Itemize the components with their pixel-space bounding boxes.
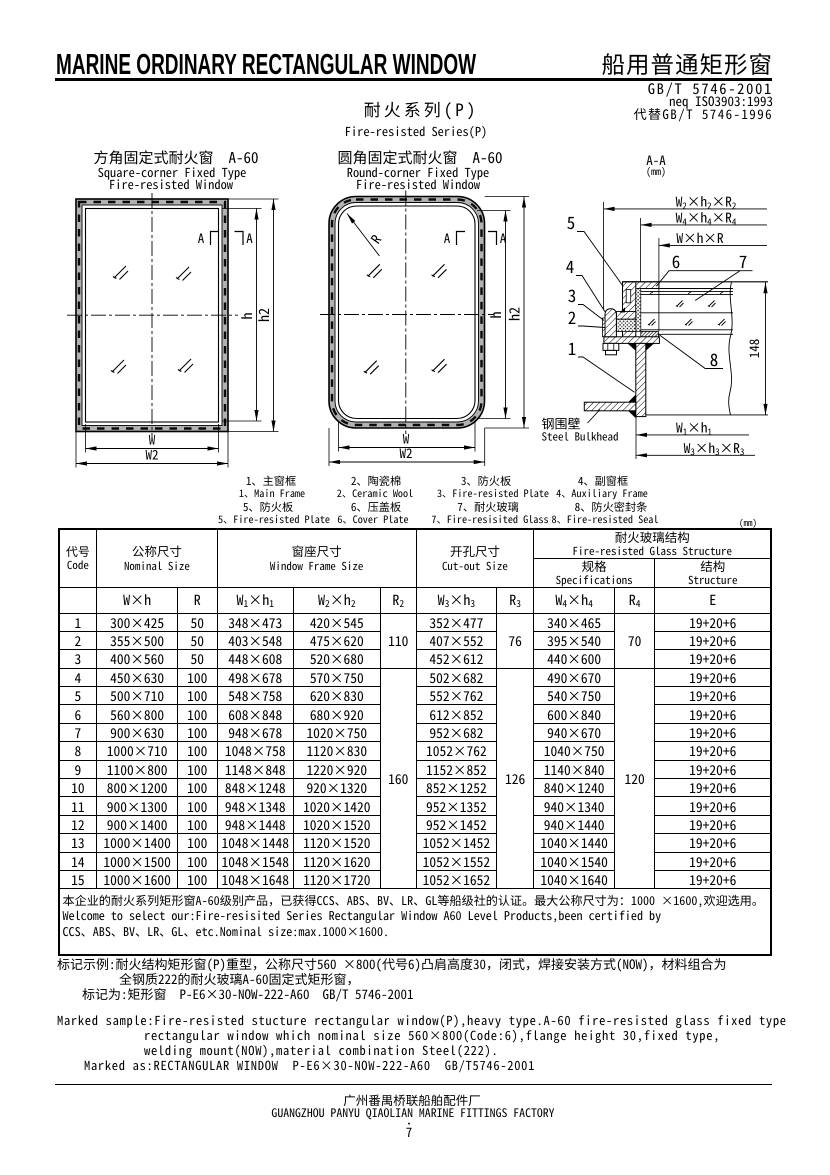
- svg-text:A: A: [444, 228, 451, 247]
- svg-text:148: 148: [744, 339, 763, 359]
- svg-text:5: 5: [567, 209, 576, 234]
- svg-text:W×h×R: W×h×R: [676, 227, 723, 247]
- svg-text:A: A: [246, 228, 253, 247]
- svg-text:Steel Bulkhead: Steel Bulkhead: [542, 429, 619, 445]
- svg-text:A: A: [198, 228, 205, 247]
- svg-text:1: 1: [568, 335, 577, 360]
- svg-text:W1×h1: W1×h1: [676, 417, 713, 438]
- svg-text:h2: h2: [505, 307, 525, 321]
- svg-text:W2: W2: [146, 445, 159, 464]
- svg-text:4: 4: [566, 253, 575, 278]
- svg-text:7: 7: [739, 248, 748, 273]
- svg-text:6: 6: [672, 248, 681, 273]
- svg-text:8: 8: [710, 346, 719, 371]
- svg-text:W3×h3×R3: W3×h3×R3: [684, 437, 745, 458]
- svg-text:h: h: [486, 312, 506, 319]
- svg-text:2: 2: [568, 304, 577, 329]
- svg-text:h2: h2: [254, 308, 274, 322]
- svg-text:W2: W2: [400, 443, 413, 462]
